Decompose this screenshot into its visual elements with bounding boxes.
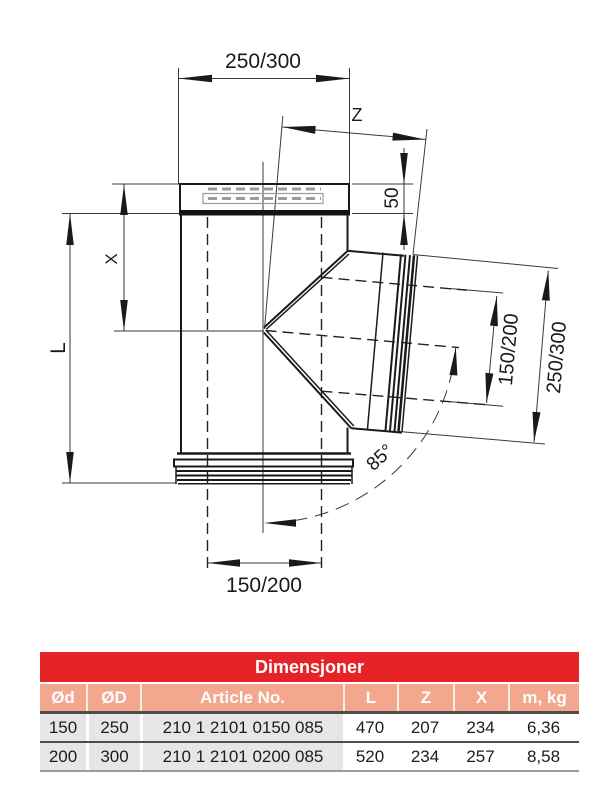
cell-weight: 6,36 <box>508 714 579 741</box>
locking-band <box>179 210 350 216</box>
cell-article: 210 1 2101 0200 085 <box>140 743 343 770</box>
col-header-od-small: Ød <box>40 684 86 711</box>
col-header-x: X <box>453 684 508 711</box>
cell-weight: 8,58 <box>508 743 579 770</box>
branch-end-rings <box>368 253 418 432</box>
cell-z: 234 <box>397 743 453 770</box>
label-socket-depth: 50 <box>382 187 403 208</box>
label-bottom-inner: 150/200 <box>226 574 302 597</box>
table-title: Dimensjoner <box>40 652 579 684</box>
label-branch-inner: 150/200 <box>495 313 523 387</box>
tee-fitting-drawing: 250/300 Z 50 X L 150/200 250/300 85° 150… <box>0 0 600 645</box>
label-top-width: 250/300 <box>225 50 301 73</box>
cell-od-small: 200 <box>40 743 86 770</box>
cell-od-big: 300 <box>86 743 140 770</box>
label-length: L <box>47 342 70 354</box>
cell-x: 234 <box>453 714 508 741</box>
table-row: 200 300 210 1 2101 0200 085 520 234 257 … <box>40 741 579 772</box>
cell-od-big: 250 <box>86 714 140 741</box>
table-header-row: Ød ØD Article No. L Z X m, kg <box>40 684 579 714</box>
label-x: X <box>102 253 121 264</box>
inner-pipe-dashed-lines <box>208 217 487 573</box>
cell-x: 257 <box>453 743 508 770</box>
dimension-lines <box>62 68 558 563</box>
cell-od-small: 150 <box>40 714 86 741</box>
col-header-article: Article No. <box>140 684 343 711</box>
label-angle: 85° <box>363 440 398 475</box>
cell-z: 207 <box>397 714 453 741</box>
col-header-weight: m, kg <box>508 684 579 711</box>
dimensions-table: Dimensjoner Ød ØD Article No. L Z X m, k… <box>40 652 579 772</box>
col-header-z: Z <box>397 684 453 711</box>
label-z: Z <box>352 105 363 125</box>
cell-l: 520 <box>343 743 397 770</box>
label-branch-outer: 250/300 <box>543 321 571 395</box>
cell-l: 470 <box>343 714 397 741</box>
col-header-l: L <box>343 684 397 711</box>
arrowheads <box>66 75 550 567</box>
col-header-od-big: ØD <box>86 684 140 711</box>
cell-article: 210 1 2101 0150 085 <box>140 714 343 741</box>
page: 250/300 Z 50 X L 150/200 250/300 85° 150… <box>0 0 600 800</box>
table-row: 150 250 210 1 2101 0150 085 470 207 234 … <box>40 714 579 741</box>
